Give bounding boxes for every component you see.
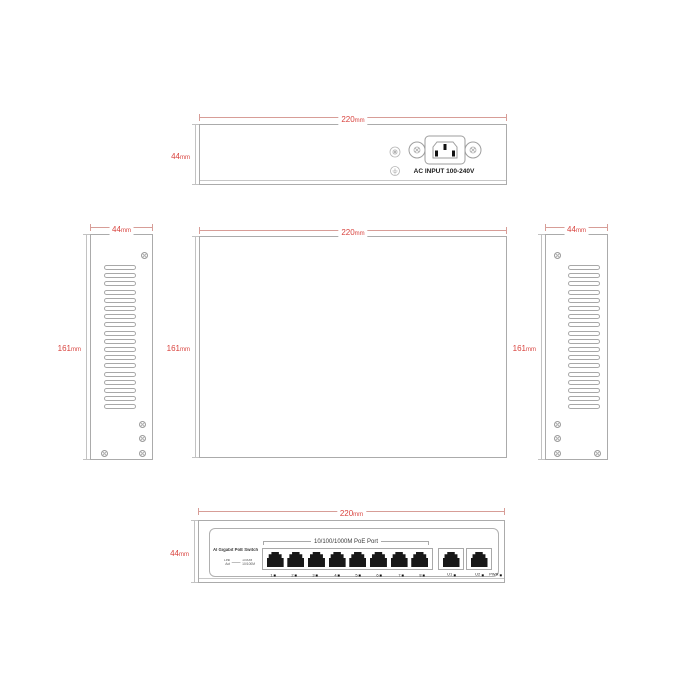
screw-icon [554,252,561,259]
poe-switch-dimensional-drawing: 220mm 44mm [0,0,700,700]
ac-input-label: AC INPUT 100-240V [409,169,479,176]
dimension-left-width: 44mm [90,224,153,231]
dimension-label: 161mm [167,339,190,355]
dimension-label: 220mm [338,110,367,126]
vent-slot [104,363,136,368]
rj45-port [349,552,366,567]
led-indicator [273,575,275,577]
uplink-port-box-2 [466,548,492,570]
screw-icon [554,435,561,442]
vent-slot [104,265,136,270]
screw-icon [554,421,561,428]
legend-left-bottom: Act [225,563,230,566]
legend-right-bottom: 10/100M [242,563,255,566]
led-indicator [453,574,455,576]
legend-left-top: Link [224,559,230,562]
rj45-port [308,552,325,567]
vent-slot [568,339,600,344]
rj45-port [287,552,304,567]
vent-slot [104,355,136,360]
ground-symbol-icon [391,167,400,176]
vent-slot [568,298,600,303]
vent-slot [104,290,136,295]
screw-icon [594,450,601,457]
dimension-label: 44mm [170,544,189,560]
vent-slot [568,404,600,409]
rj45-port [411,552,428,567]
uplink-port-box-1 [438,548,464,570]
vent-slot [104,273,136,278]
led-legend: Link Act 1000M 10/100M [224,559,255,566]
vent-slot [568,363,600,368]
dimension-front-height: 44mm [191,520,198,583]
dimension-label: 161mm [513,339,536,355]
led-indicator [380,575,382,577]
screw-icon [139,435,146,442]
vent-slot [568,281,600,286]
screw-icon [139,450,146,457]
dimension-label: 44mm [171,147,190,163]
vent-slot [104,298,136,303]
vent-slot [104,396,136,401]
view-top: 220mm 161mm [199,236,507,458]
vent-slot [568,322,600,327]
dimension-label: 161mm [58,339,81,355]
led-indicator [295,575,297,577]
vent-slot [104,281,136,286]
vent-slot [104,404,136,409]
led-indicator [423,575,425,577]
vent-slot [104,339,136,344]
rj45-port [443,552,460,567]
vent-slot [104,331,136,336]
view-right-side: 44mm 161mm [545,234,608,460]
dimension-back-width: 220mm [199,114,507,121]
vent-slot [568,396,600,401]
view-back-panel: 220mm 44mm [199,124,507,185]
dimension-front-width: 220mm [198,508,505,515]
dimension-right-width: 44mm [545,224,608,231]
dimension-right-height: 161mm [538,234,545,460]
screw-icon [554,450,561,457]
screw-icon [101,450,108,457]
vent-slot [568,290,600,295]
led-indicator [402,575,404,577]
port-group-bracket: 10/100/1000M PoE Port [263,538,429,545]
screw-icon [141,252,148,259]
rj45-port [267,552,284,567]
rj45-port [391,552,408,567]
vent-slot [568,306,600,311]
dimension-left-height: 161mm [83,234,90,460]
view-front: 220mm 44mm AI Gigabit PoE Switch Link Ac… [198,520,505,583]
poe-port-group [262,548,433,570]
vent-slot [568,331,600,336]
vent-slot [568,388,600,393]
rj45-port [370,552,387,567]
dimension-back-height: 44mm [192,124,199,185]
case-bottom-lip [200,180,506,181]
dimension-label: 220mm [337,504,366,520]
legend-right-top: 1000M [242,559,252,562]
view-left-side: 44mm 161mm [90,234,153,460]
led-indicator [359,575,361,577]
led-indicator [316,575,318,577]
led-indicator [499,574,501,576]
vent-slot [104,388,136,393]
vent-slot [568,314,600,319]
vent-slot [568,380,600,385]
vent-slot [104,322,136,327]
vent-slot [568,372,600,377]
vent-slot [104,314,136,319]
rj45-port [471,552,488,567]
vent-slot [568,347,600,352]
rj45-port [329,552,346,567]
screw-icon [139,421,146,428]
case-bottom-lip [199,578,504,579]
vent-slot [104,306,136,311]
led-indicator [338,575,340,577]
dimension-label: 44mm [109,220,134,236]
port-group-label: 10/100/1000M PoE Port [311,539,381,545]
vent-slot [104,372,136,377]
dimension-label: 220mm [338,223,367,239]
vent-slot [104,347,136,352]
dimension-top-height: 161mm [192,236,199,458]
vent-slot [568,265,600,270]
vent-slot [568,355,600,360]
vent-slot [104,380,136,385]
device-name-label: AI Gigabit PoE Switch [213,548,258,552]
legend-line [232,562,241,563]
screw-symbol-icon [390,147,400,157]
dimension-label: 44mm [564,220,589,236]
vent-slot [568,273,600,278]
dimension-top-width: 220mm [199,227,507,234]
